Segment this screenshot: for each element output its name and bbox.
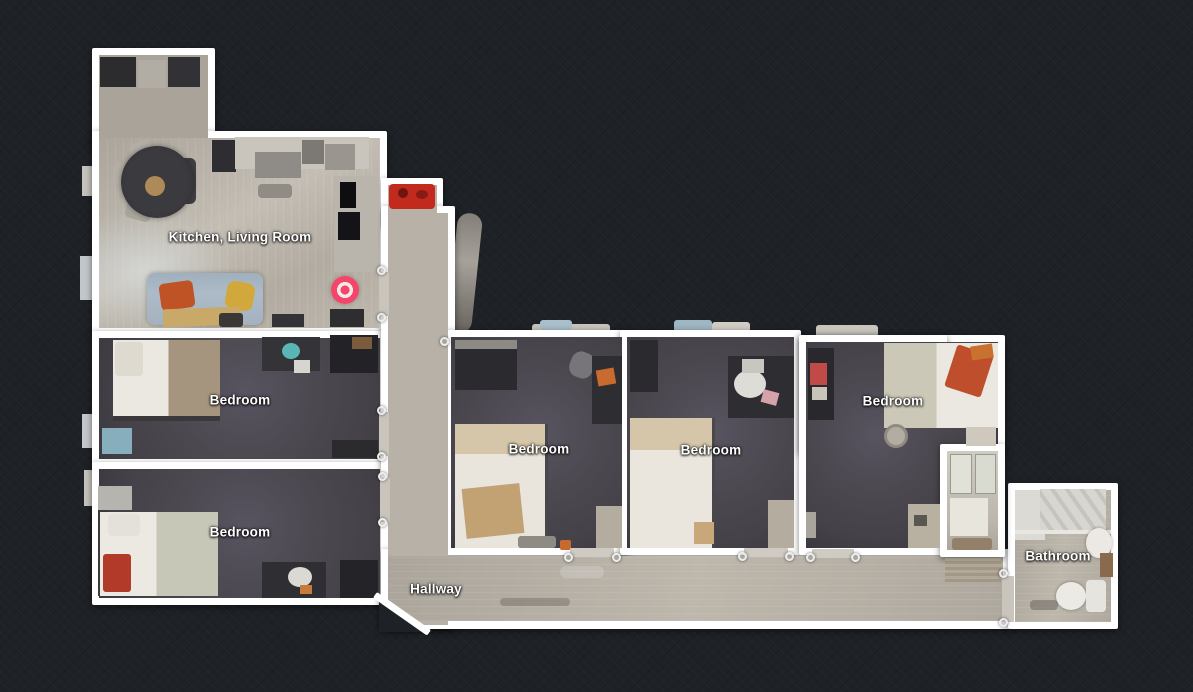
cabinet-shadow [340, 182, 356, 208]
stool [884, 424, 908, 448]
door-opening-bathroom [1002, 576, 1014, 622]
closet-door-panel [950, 454, 972, 494]
table-bowl [145, 176, 165, 196]
dresser [332, 440, 378, 458]
closet-fixture [950, 498, 988, 536]
bath-clutter [1100, 553, 1113, 577]
desk-chair [288, 567, 312, 587]
red-bike-detail [398, 188, 408, 198]
desk-item-red [810, 363, 827, 385]
kitchen-sink [255, 152, 301, 178]
dark-object [219, 313, 243, 327]
room-label-hallway: Hallway [410, 582, 462, 597]
desk [592, 356, 622, 424]
door-opening-bedroom-right [812, 549, 854, 558]
room-label-bedroom-middle-1: Bedroom [509, 442, 570, 457]
floor-hallway[interactable] [388, 556, 1003, 621]
room-label-bedroom-left-upper: Bedroom [210, 393, 271, 408]
closet-clutter [952, 538, 992, 550]
wall-node[interactable] [851, 553, 860, 562]
camera-position-marker[interactable] [331, 276, 359, 304]
kitchen-appliance [325, 144, 355, 170]
kitchen-table-small [138, 60, 166, 88]
door-leaf [596, 506, 622, 548]
room-label-bedroom-left-lower: Bedroom [210, 525, 271, 540]
door-opening-bedroom-left-lower [380, 478, 390, 522]
toilet-tank [1086, 580, 1106, 612]
room-label-bedroom-middle-2: Bedroom [681, 443, 742, 458]
hall-scuff [500, 598, 570, 606]
tv-unit [330, 309, 364, 327]
wall-node[interactable] [999, 618, 1008, 627]
floor-item [806, 512, 816, 538]
desk-item-orange [596, 368, 617, 387]
wall-node[interactable] [440, 337, 449, 346]
door-opening-kitchen [379, 272, 389, 316]
kitchen-unit [168, 57, 200, 87]
wall-node[interactable] [378, 472, 387, 481]
desk-chair [282, 343, 300, 359]
hall-scuff [560, 566, 604, 578]
door-leaf [768, 500, 794, 548]
wardrobe [630, 340, 658, 392]
door-opening-bedroom-middle-2 [744, 548, 788, 557]
laptop [742, 359, 764, 373]
kitchen-unit [100, 57, 136, 87]
cabinet-shadow [338, 212, 360, 240]
exterior-object [540, 320, 572, 330]
wall-node[interactable] [564, 553, 573, 562]
cupboard-item [914, 515, 927, 526]
desk-item [300, 585, 312, 594]
red-bike-detail [416, 190, 428, 199]
cupboard [908, 504, 940, 548]
wall-node[interactable] [999, 569, 1008, 578]
wardrobe [98, 486, 132, 510]
shower-glass [1040, 489, 1106, 531]
dark-object [272, 314, 304, 327]
room-label-bathroom: Bathroom [1025, 549, 1090, 564]
door-opening-bedroom-left-upper [379, 412, 389, 456]
wall-node[interactable] [806, 553, 815, 562]
desk-chair [734, 370, 766, 398]
pillow [115, 342, 143, 376]
room-label-bedroom-right: Bedroom [863, 394, 924, 409]
red-bike [389, 184, 435, 209]
nightstand [966, 427, 996, 446]
wall-node[interactable] [377, 313, 386, 322]
toilet-bowl [1056, 582, 1086, 610]
wall-node[interactable] [377, 452, 386, 461]
hall-clutter [945, 558, 1001, 582]
wall-node[interactable] [785, 552, 794, 561]
floorplan-view: Kitchen, Living Room Bedroom Bedroom Bed… [0, 0, 1193, 692]
desk-item [294, 360, 310, 373]
small-desk [102, 428, 132, 454]
kitchen-stove [302, 140, 324, 164]
wardrobe-item [352, 337, 372, 349]
pillow [108, 514, 140, 536]
dresser [340, 560, 378, 598]
cardboard-box [462, 483, 525, 539]
floor-item [518, 536, 556, 548]
red-blanket [103, 554, 131, 592]
kitchen-appliance [212, 140, 236, 172]
closet-door-panel [975, 454, 996, 494]
wall-node[interactable] [377, 266, 386, 275]
bath-marks [1030, 600, 1058, 610]
floor-item [694, 522, 714, 544]
kitchen-stools [258, 184, 292, 198]
desk-item [812, 387, 827, 400]
door-opening-bedroom-middle-1 [570, 548, 614, 557]
wall-node[interactable] [612, 553, 621, 562]
wall-node[interactable] [378, 518, 387, 527]
sofa-cushion-orange [158, 280, 195, 311]
wardrobe-top [455, 340, 517, 349]
wall-node[interactable] [377, 406, 386, 415]
room-label-kitchen-living: Kitchen, Living Room [169, 230, 312, 245]
wall-node[interactable] [738, 552, 747, 561]
